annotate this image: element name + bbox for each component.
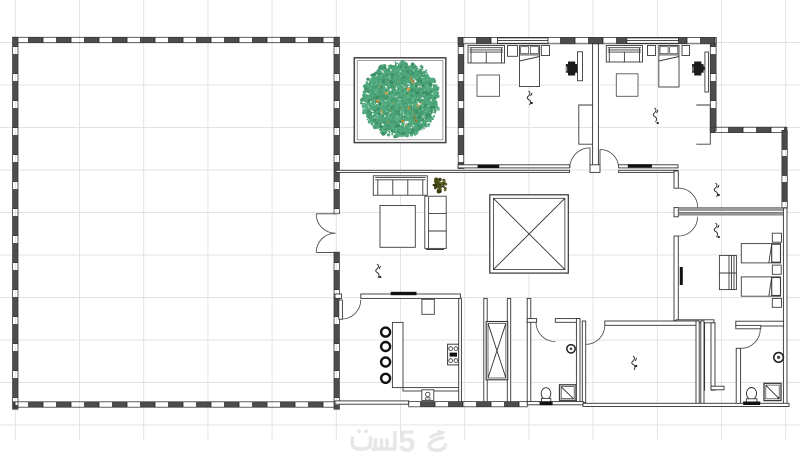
svg-text:5: 5 [399, 425, 416, 459]
